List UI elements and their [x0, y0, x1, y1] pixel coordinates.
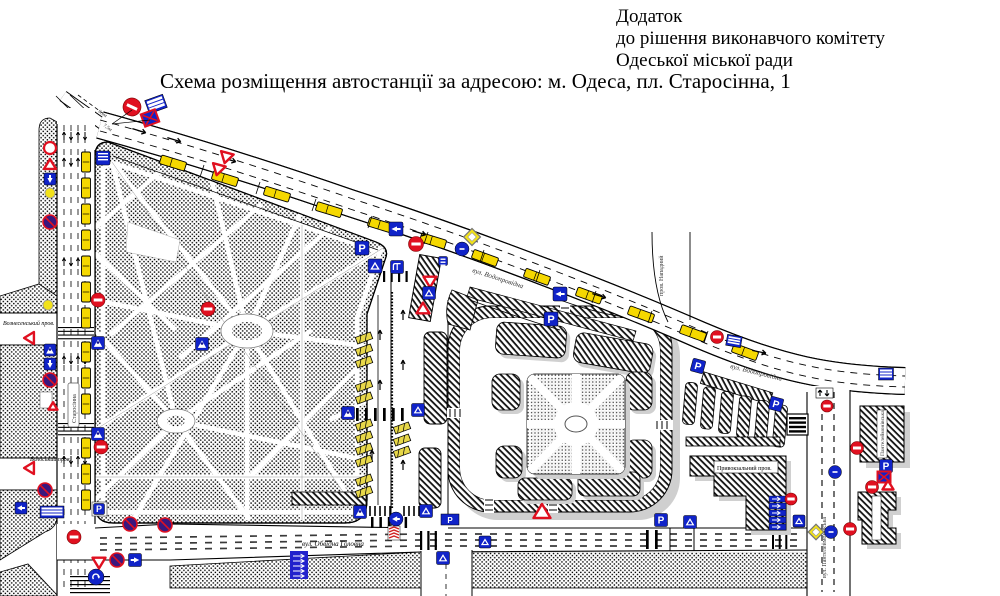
svg-text:Одеської міської ради: Одеської міської ради — [616, 50, 793, 71]
svg-text:вул. Обвідна Головна: вул. Обвідна Головна — [302, 540, 364, 548]
svg-text:Привокзальний пров.: Привокзальний пров. — [717, 465, 772, 472]
svg-text:P: P — [658, 516, 665, 527]
svg-text:P: P — [96, 504, 102, 514]
svg-text:Волоський пров.: Волоський пров. — [30, 456, 71, 463]
svg-text:Додаток: Додаток — [616, 6, 683, 27]
svg-text:Вознесенський пров.: Вознесенський пров. — [3, 320, 55, 327]
svg-text:пров. Нападний: пров. Нападний — [658, 255, 665, 296]
svg-text:Схема розміщення автостанції з: Схема розміщення автостанції за адресою:… — [160, 69, 791, 93]
svg-text:P: P — [447, 516, 453, 525]
svg-text:вул. Пантелеймонівська: вул. Пантелеймонівська — [821, 517, 828, 578]
svg-text:до рішення виконавчого комітет: до рішення виконавчого комітету — [616, 28, 885, 49]
svg-text:Старосінна: Старосінна — [72, 394, 78, 423]
svg-text:Пантелеймонівська: Пантелеймонівська — [879, 410, 886, 456]
svg-text:P: P — [547, 314, 554, 326]
svg-text:P: P — [358, 243, 365, 255]
